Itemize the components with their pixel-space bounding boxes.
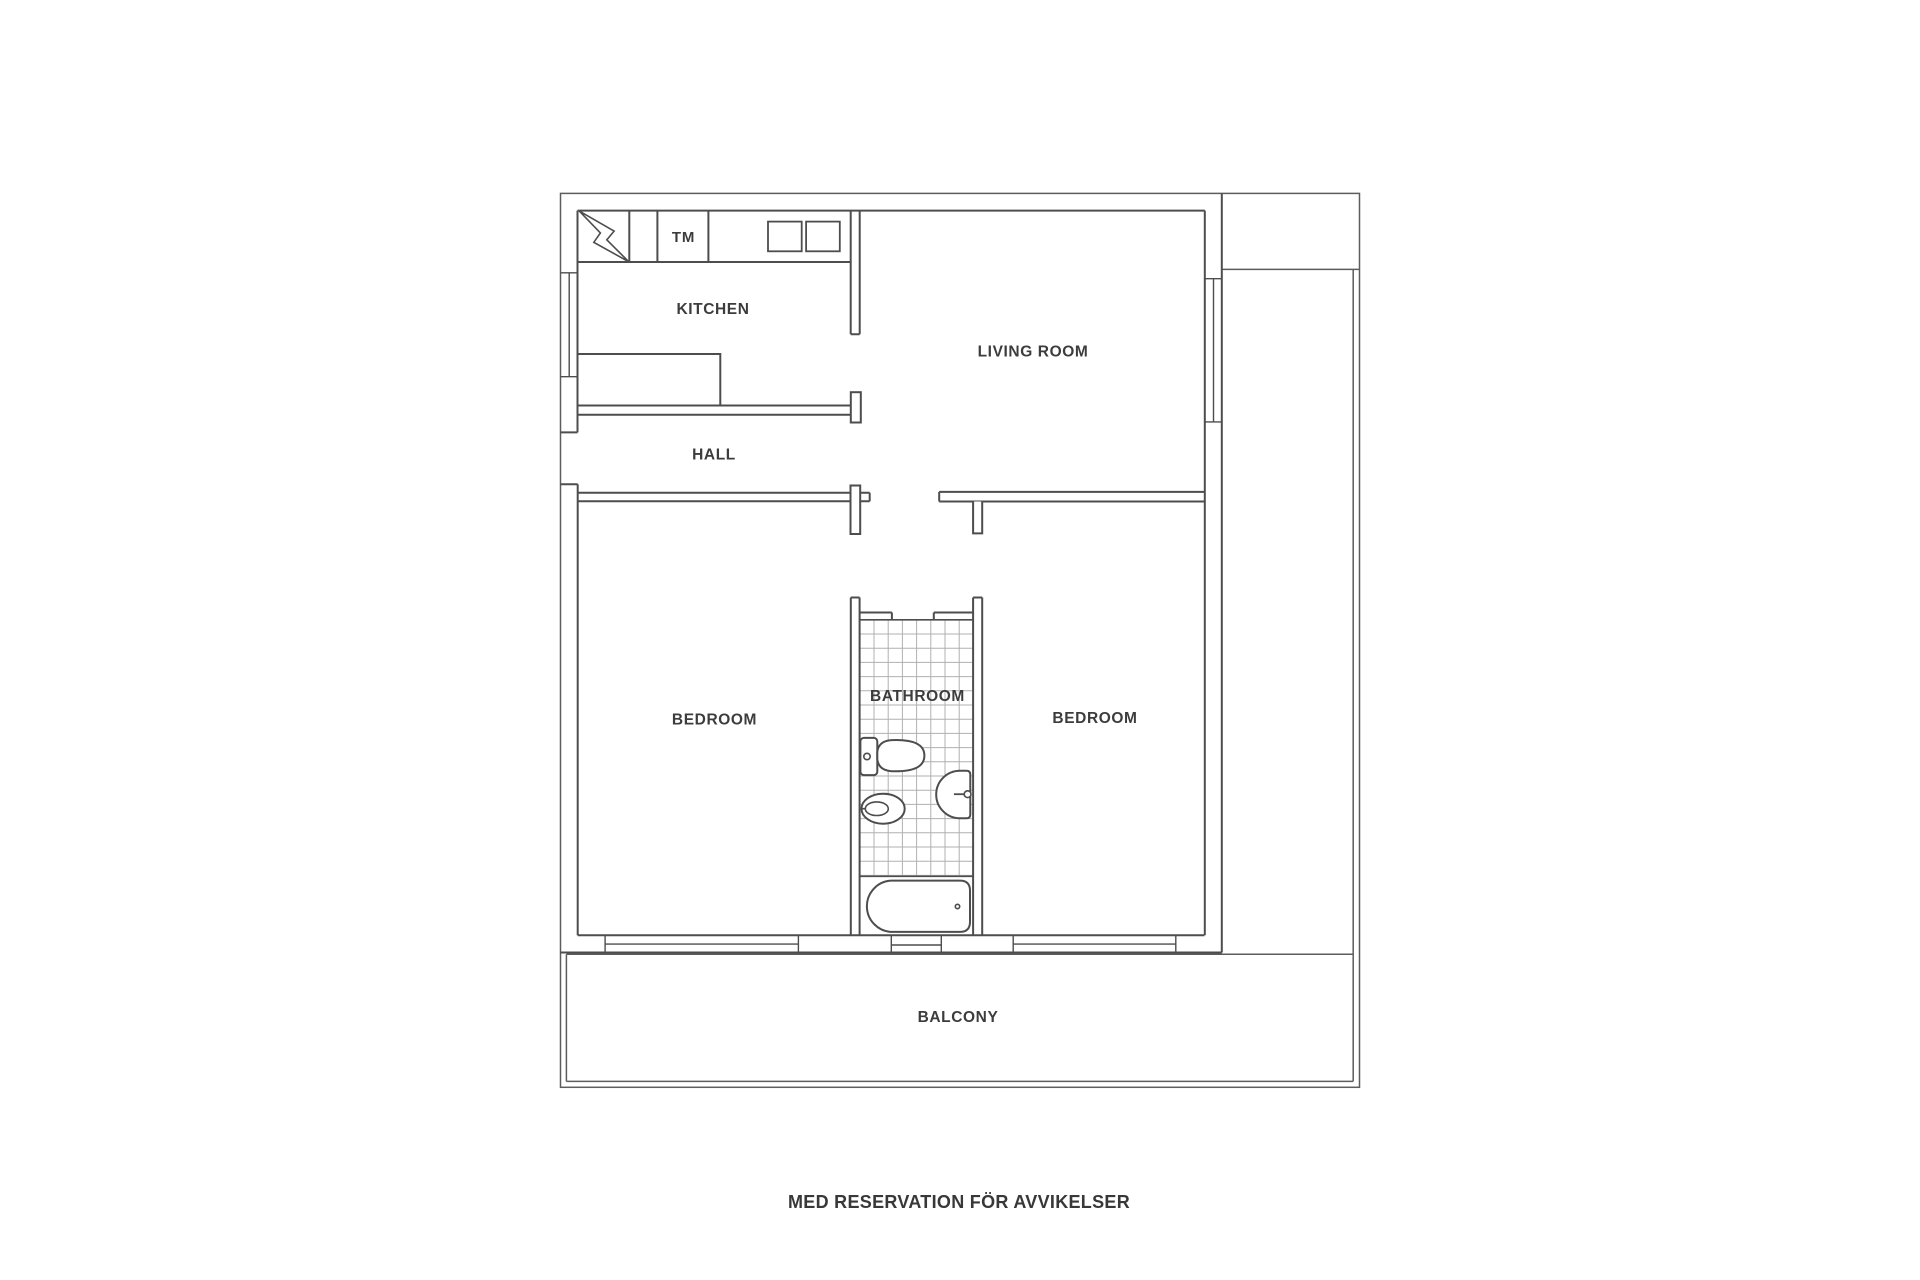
svg-text:BATHROOM: BATHROOM	[870, 688, 965, 705]
svg-text:BALCONY: BALCONY	[918, 1009, 999, 1026]
svg-text:HALL: HALL	[692, 447, 736, 464]
svg-text:MED RESERVATION FÖR AVVIKELSER: MED RESERVATION FÖR AVVIKELSER	[788, 1192, 1130, 1212]
svg-text:LIVING ROOM: LIVING ROOM	[978, 344, 1089, 361]
svg-text:TM: TM	[672, 229, 695, 246]
svg-text:BEDROOM: BEDROOM	[1052, 710, 1137, 727]
svg-text:KITCHEN: KITCHEN	[676, 301, 749, 318]
svg-text:BEDROOM: BEDROOM	[672, 712, 757, 729]
